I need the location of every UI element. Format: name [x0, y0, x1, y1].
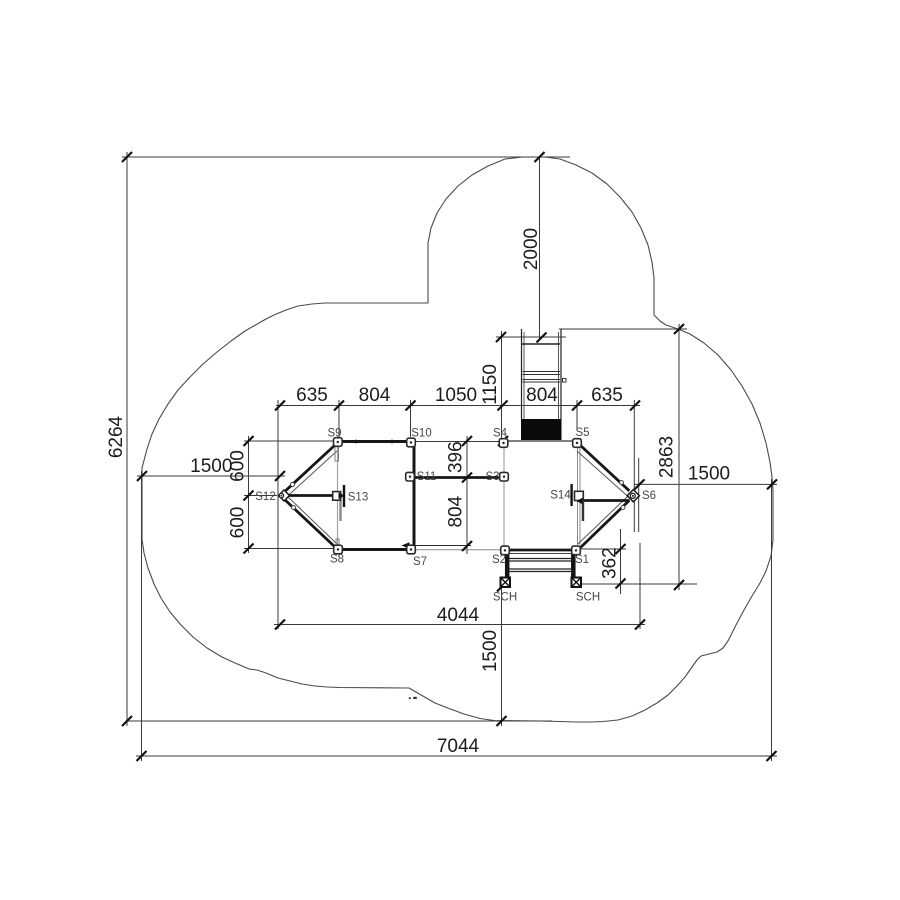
svg-text:396: 396: [446, 441, 467, 473]
svg-text:4044: 4044: [437, 605, 480, 626]
svg-text:S5: S5: [575, 427, 589, 439]
svg-text:S11: S11: [417, 471, 437, 483]
svg-text:804: 804: [526, 385, 558, 406]
svg-text:804: 804: [359, 385, 391, 406]
svg-text:635: 635: [591, 385, 623, 406]
svg-text:SCH: SCH: [493, 592, 517, 604]
svg-text:S12: S12: [255, 491, 275, 503]
svg-text:1500: 1500: [688, 464, 730, 485]
svg-text:1500: 1500: [480, 630, 501, 672]
svg-text:S3: S3: [485, 471, 499, 483]
svg-text:S6: S6: [642, 490, 656, 502]
svg-text:1150: 1150: [480, 364, 501, 405]
svg-text:SCH: SCH: [576, 592, 600, 604]
svg-text:S9: S9: [327, 428, 341, 440]
svg-text:2863: 2863: [657, 436, 678, 478]
svg-text:1500: 1500: [190, 456, 232, 477]
svg-text:6264: 6264: [106, 415, 127, 458]
svg-text:1050: 1050: [435, 385, 477, 406]
svg-text:804: 804: [446, 495, 467, 527]
svg-text:7044: 7044: [437, 736, 480, 757]
svg-text:S14: S14: [550, 490, 571, 502]
svg-text:S10: S10: [411, 428, 431, 440]
svg-text:S4: S4: [493, 428, 508, 440]
svg-text:S2: S2: [492, 554, 506, 566]
svg-text:S8: S8: [330, 554, 344, 566]
svg-text:S1: S1: [575, 554, 589, 566]
svg-text:600: 600: [228, 507, 249, 539]
svg-text:S13: S13: [348, 492, 368, 504]
svg-text:S7: S7: [413, 556, 427, 568]
svg-text:635: 635: [296, 385, 328, 406]
svg-text:362: 362: [600, 547, 621, 579]
svg-text:2000: 2000: [521, 228, 542, 270]
